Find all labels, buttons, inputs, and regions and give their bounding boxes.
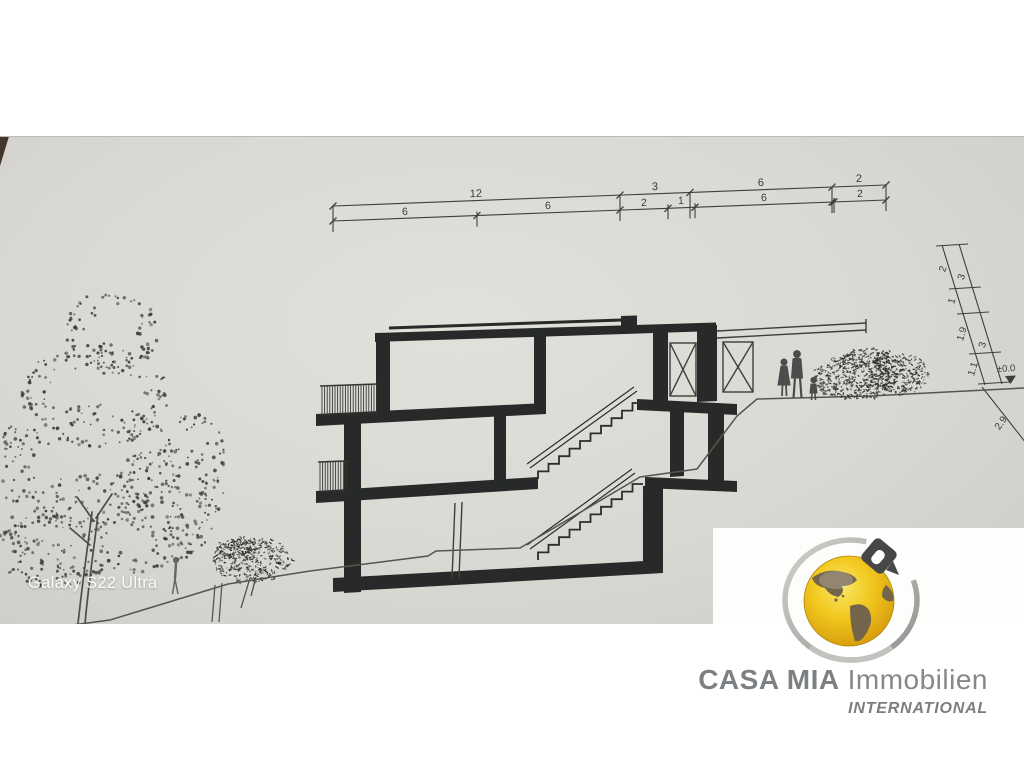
camera-watermark: Galaxy S22 Ultra — [28, 574, 158, 593]
brand-strong: CASA MIA — [698, 664, 839, 695]
dim-label: 12 — [470, 188, 483, 200]
dim-label: 3 — [977, 340, 989, 349]
brand-light: Immobilien — [848, 664, 988, 695]
figure-man — [792, 351, 803, 398]
interior-wall-upper — [534, 334, 546, 410]
upper-balcony-railing — [320, 384, 377, 416]
mid-left-wall — [344, 423, 361, 497]
upper-left-wall — [376, 333, 390, 422]
upper-right-wall — [653, 326, 668, 405]
figure-woman — [778, 359, 790, 396]
brand-name: CASA MIAImmobilien — [698, 664, 988, 696]
family-figures — [778, 351, 817, 400]
wall-below-entrance-left — [670, 410, 684, 477]
dim-label: 1 — [946, 296, 958, 305]
dim-label: 6 — [761, 192, 767, 204]
dim-label: 1 — [678, 195, 684, 207]
level-marker-label: ±0.0 — [997, 363, 1016, 375]
top-dimension-chain — [330, 182, 890, 232]
tree-foliage — [0, 294, 225, 588]
dim-label: 6 — [545, 200, 551, 212]
dim-label: 6 — [758, 177, 765, 189]
dim-label: 2 — [857, 188, 863, 200]
right-bushes — [812, 347, 929, 399]
lower-window — [452, 502, 462, 579]
building-section — [316, 316, 737, 594]
bottom-slab — [333, 560, 663, 592]
interior-wall-mid — [494, 409, 506, 485]
dim-label: 2 — [856, 173, 863, 185]
figure-child — [810, 377, 817, 400]
logo-wordmark: CASA MIAImmobilien INTERNATIONAL — [698, 664, 988, 718]
small-tree-foliage — [213, 536, 295, 584]
dim-label: 2 — [641, 197, 647, 209]
logo-globe-shine — [819, 571, 853, 589]
dim-label: 3 — [956, 272, 968, 281]
wall-below-entrance-right — [708, 407, 724, 490]
right-dimension-labels: 2 1 1.9 1.1 3 3 ±0.0 2.9 — [937, 264, 1015, 432]
tree-trunk — [70, 494, 112, 624]
lower-balcony-railing — [318, 461, 347, 493]
brand-tagline: INTERNATIONAL — [698, 700, 988, 718]
figure-person-left — [173, 557, 179, 594]
top-dimension-labels: 12 3 6 2 6 6 2 1 6 2 — [402, 173, 863, 218]
casa-mia-logo — [760, 520, 960, 670]
table-corner — [0, 137, 10, 166]
stairs — [538, 403, 643, 560]
cellar-right-wall — [643, 485, 663, 569]
terrace-fence — [717, 319, 866, 338]
dim-label: 3 — [652, 181, 659, 193]
photo-of-architectural-section: 12 3 6 2 6 6 2 1 6 2 — [0, 0, 1024, 768]
porch-wall — [697, 325, 717, 402]
depth-label: 2.9 — [993, 414, 1010, 432]
dim-label: 6 — [402, 206, 408, 218]
